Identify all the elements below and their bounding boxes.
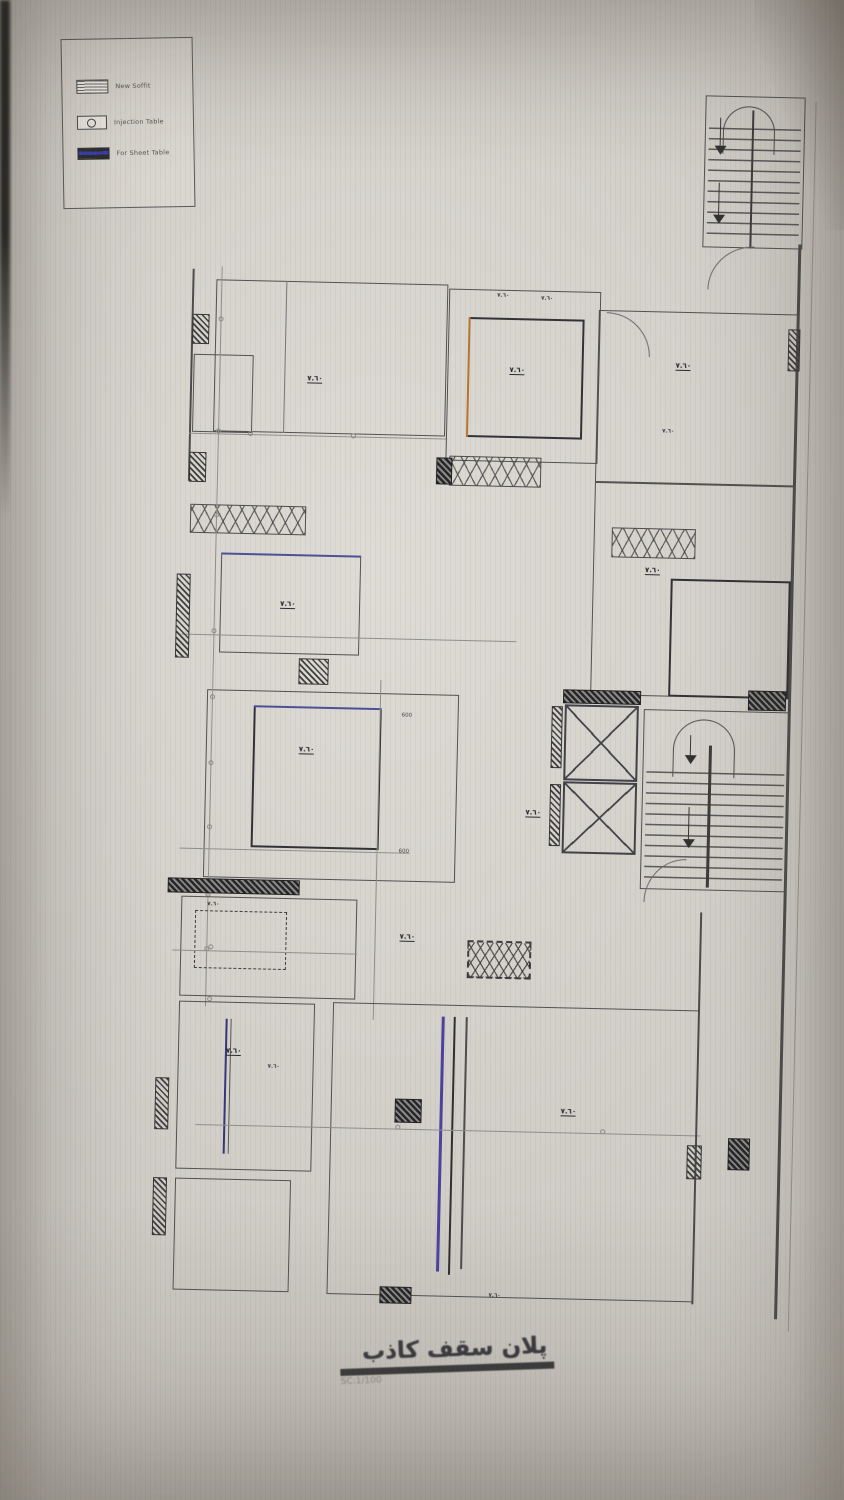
photo-vignette	[0, 0, 844, 1500]
